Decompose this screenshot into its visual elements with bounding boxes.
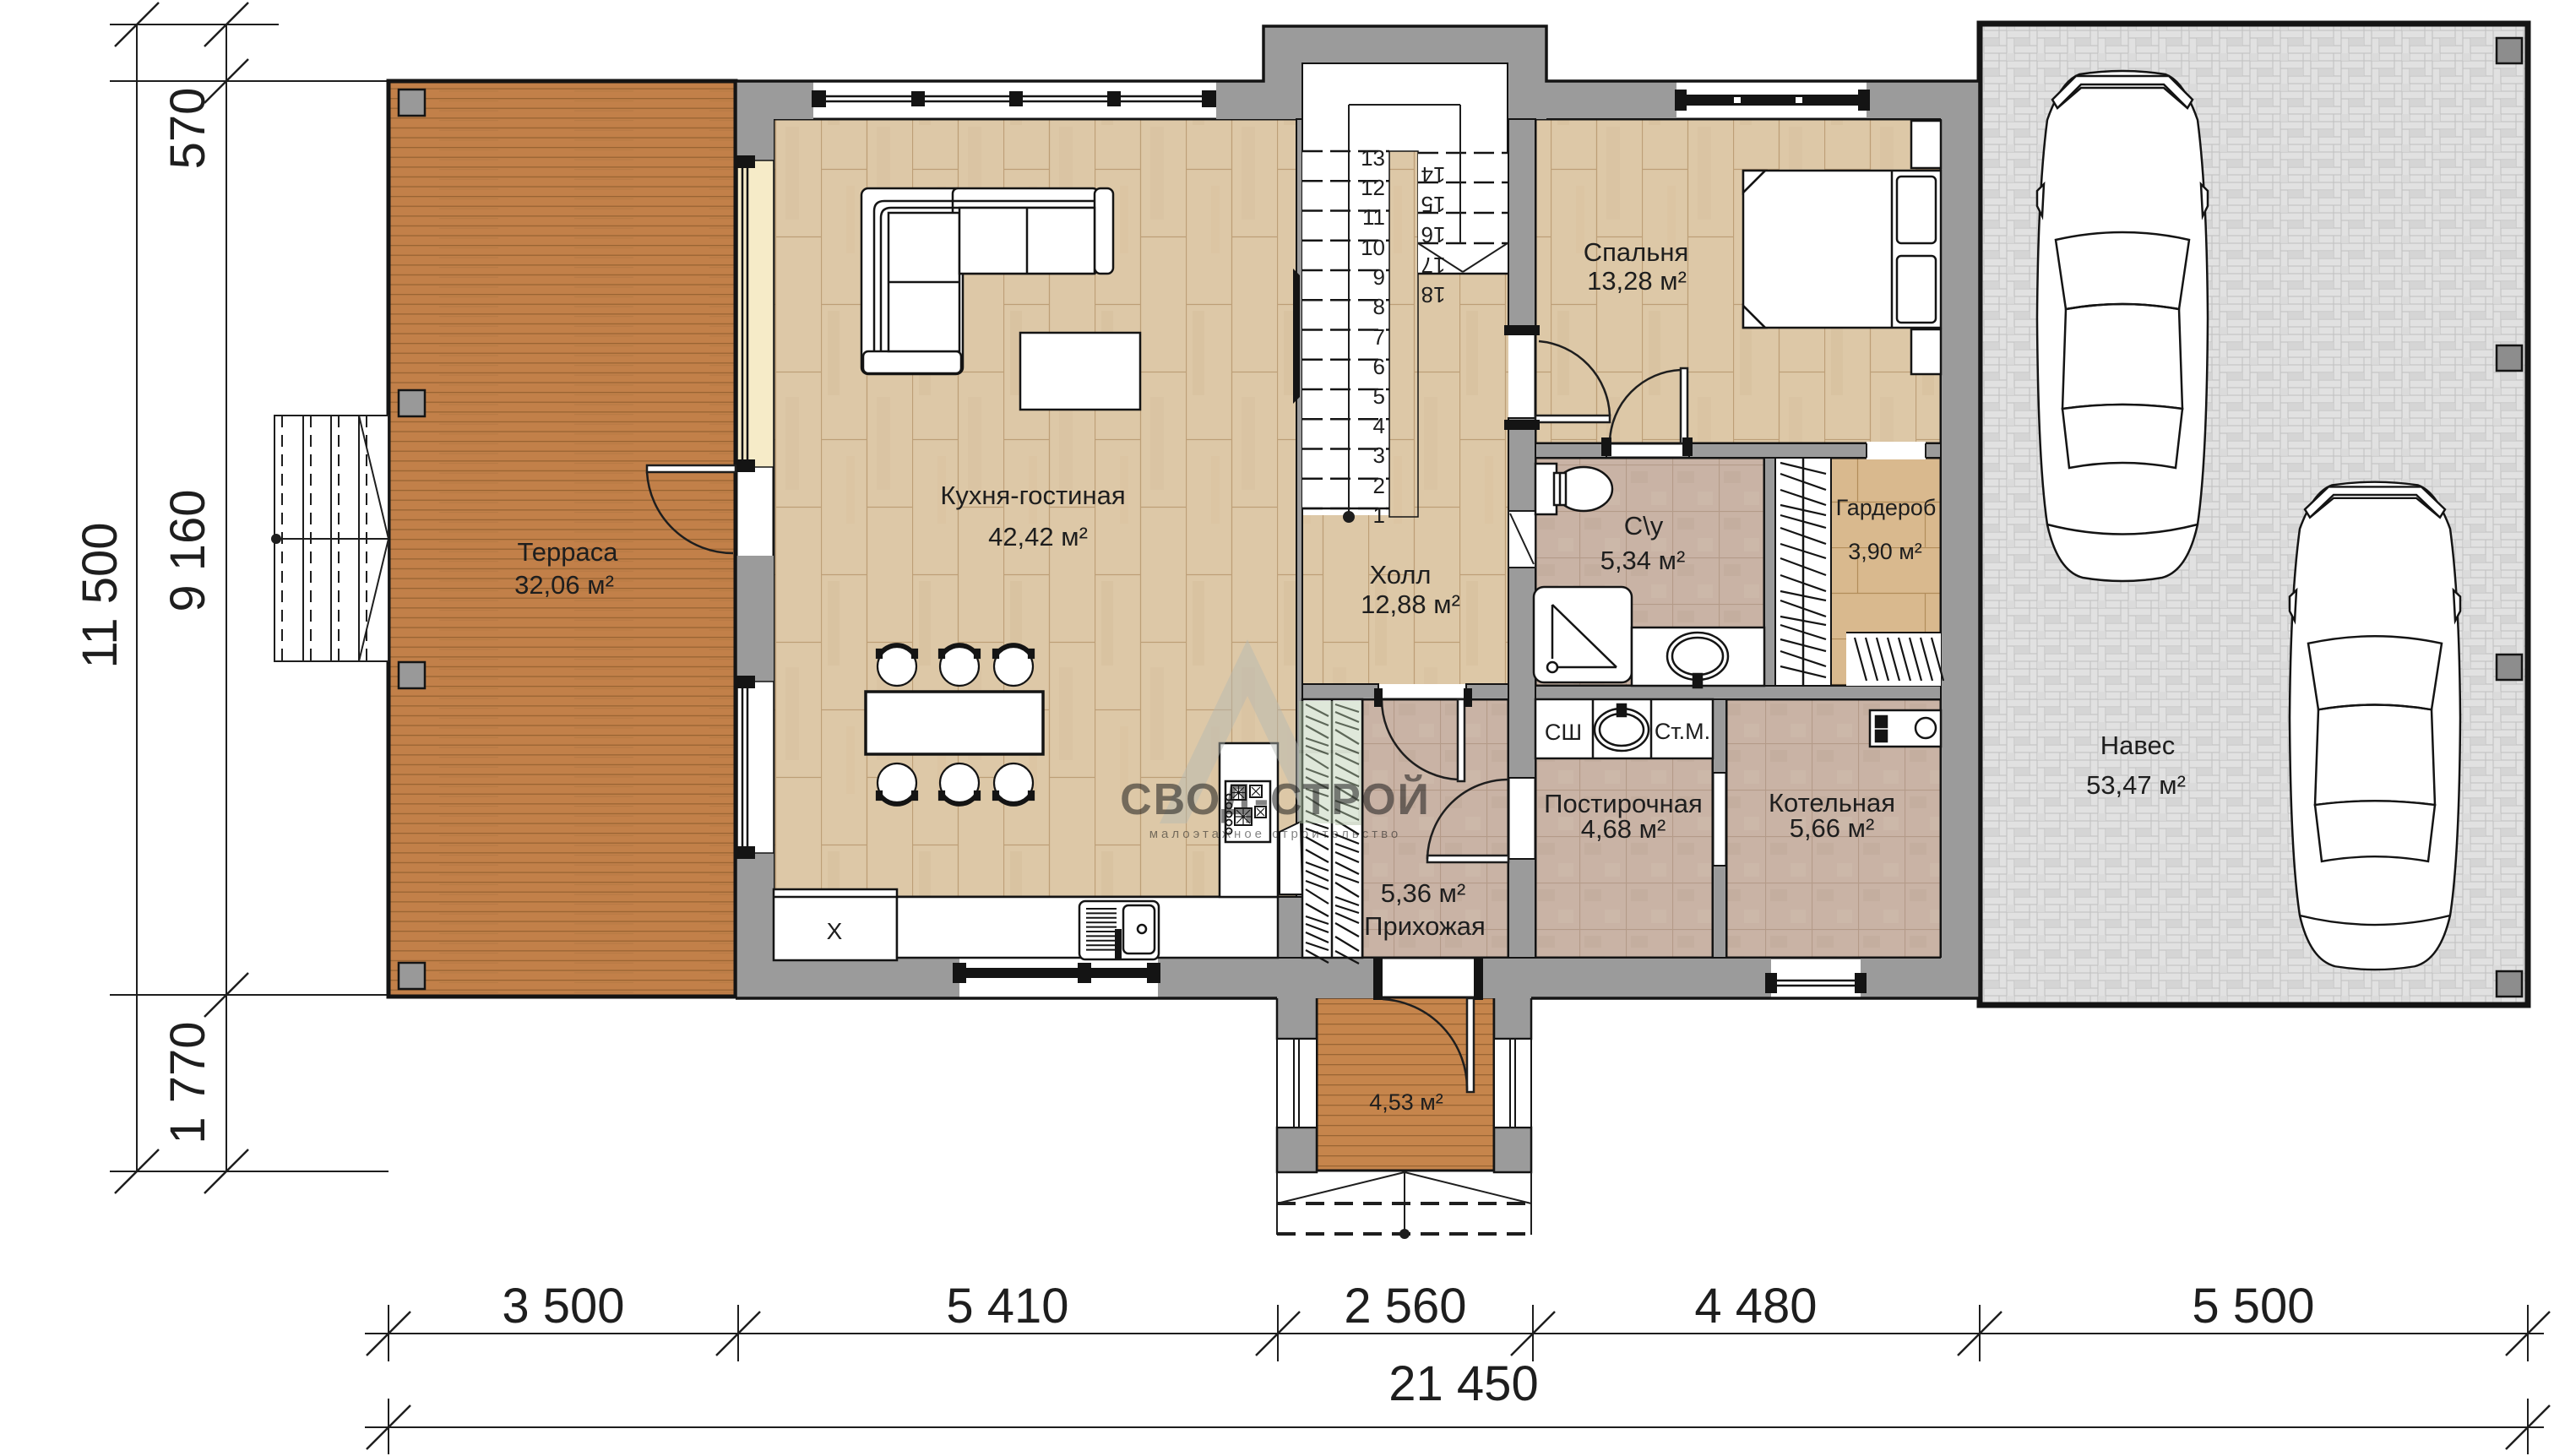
svg-text:2 560: 2 560 (1344, 1279, 1466, 1334)
svg-text:3: 3 (1373, 443, 1385, 468)
svg-text:16: 16 (1421, 222, 1446, 247)
svg-text:3 500: 3 500 (502, 1279, 624, 1334)
svg-text:Ст.М.: Ст.М. (1655, 719, 1710, 744)
svg-text:13: 13 (1361, 145, 1385, 171)
svg-text:Холл: Холл (1369, 560, 1431, 589)
svg-text:Навес: Навес (2100, 731, 2176, 760)
svg-text:X: X (827, 918, 843, 944)
svg-text:5 500: 5 500 (2192, 1279, 2314, 1334)
svg-text:Спальня: Спальня (1584, 237, 1689, 267)
svg-text:11: 11 (1362, 204, 1385, 230)
svg-text:6: 6 (1373, 354, 1385, 379)
svg-text:4,68 м²: 4,68 м² (1581, 814, 1666, 844)
svg-text:570: 570 (160, 88, 215, 170)
svg-text:15: 15 (1421, 192, 1446, 217)
svg-text:1: 1 (1373, 503, 1385, 528)
svg-text:32,06 м²: 32,06 м² (514, 570, 614, 600)
svg-text:12: 12 (1361, 175, 1385, 200)
svg-text:11 500: 11 500 (73, 522, 128, 668)
svg-text:СВОД-СТРОЙ: СВОД-СТРОЙ (1120, 774, 1431, 824)
svg-text:3,90 м²: 3,90 м² (1848, 539, 1922, 564)
svg-text:18: 18 (1421, 282, 1446, 307)
svg-text:5,66 м²: 5,66 м² (1790, 813, 1875, 843)
svg-text:5 410: 5 410 (946, 1279, 1068, 1334)
svg-text:5,34 м²: 5,34 м² (1600, 546, 1686, 575)
svg-text:С\у: С\у (1624, 511, 1664, 541)
svg-text:4: 4 (1373, 413, 1385, 438)
svg-text:Кухня-гостиная: Кухня-гостиная (940, 481, 1125, 510)
svg-text:СШ: СШ (1545, 720, 1582, 745)
svg-text:53,47 м²: 53,47 м² (2086, 770, 2186, 800)
svg-text:Гардероб: Гардероб (1836, 495, 1937, 520)
svg-text:9 160: 9 160 (160, 489, 215, 611)
svg-text:9: 9 (1373, 264, 1385, 290)
svg-text:5,36 м²: 5,36 м² (1381, 878, 1466, 908)
svg-text:17: 17 (1421, 253, 1446, 278)
svg-text:12,88 м²: 12,88 м² (1361, 589, 1460, 619)
svg-text:4,53 м²: 4,53 м² (1369, 1089, 1443, 1115)
svg-text:42,42 м²: 42,42 м² (988, 522, 1088, 551)
svg-text:1 770: 1 770 (160, 1021, 215, 1144)
svg-text:малоэтажное строительство: малоэтажное строительство (1149, 827, 1402, 841)
svg-text:14: 14 (1421, 162, 1446, 187)
svg-text:4 480: 4 480 (1694, 1279, 1817, 1334)
svg-text:5: 5 (1373, 383, 1385, 409)
svg-text:Прихожая: Прихожая (1364, 911, 1486, 941)
svg-text:10: 10 (1361, 235, 1385, 260)
svg-text:2: 2 (1373, 473, 1385, 498)
svg-text:7: 7 (1373, 324, 1385, 350)
svg-text:Терраса: Терраса (518, 537, 619, 567)
svg-text:21 450: 21 450 (1388, 1356, 1538, 1411)
svg-text:13,28 м²: 13,28 м² (1587, 266, 1687, 296)
svg-text:8: 8 (1373, 294, 1385, 319)
